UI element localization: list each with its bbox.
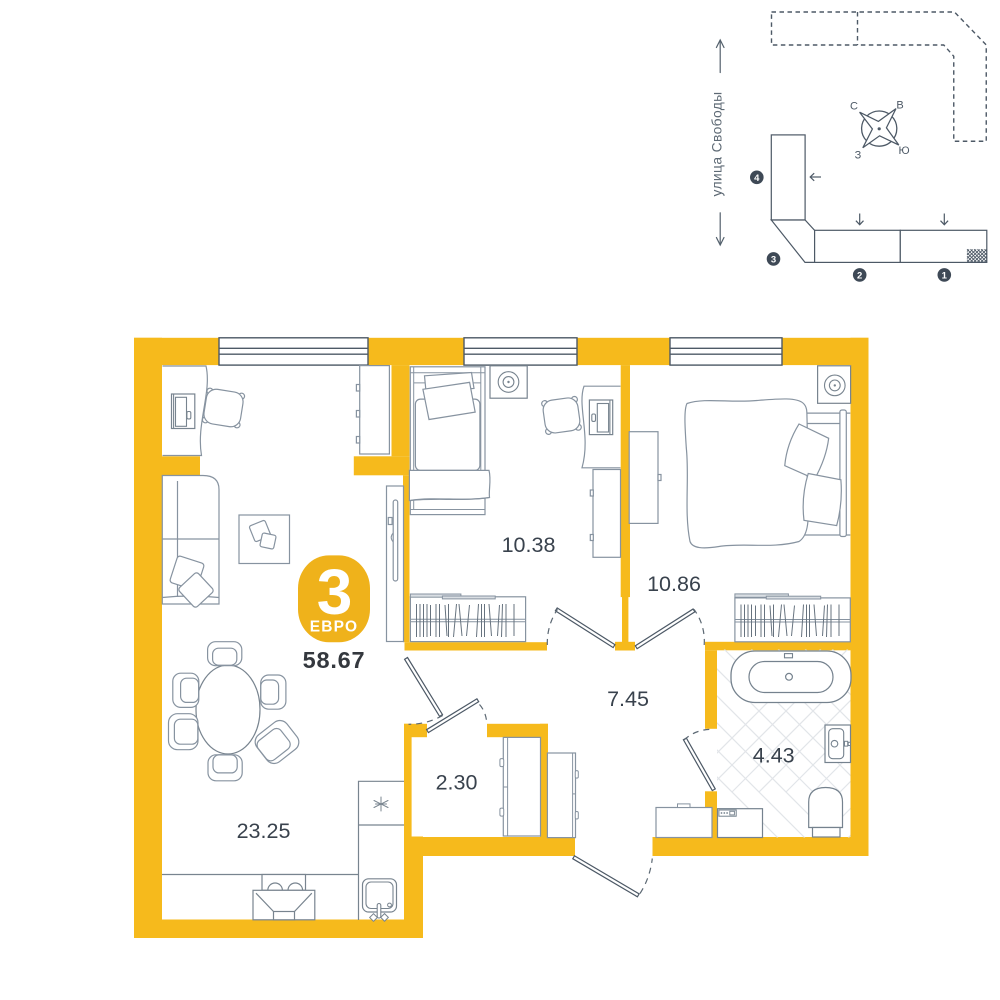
svg-text:улица Свободы: улица Свободы xyxy=(710,91,725,196)
svg-text:58.67: 58.67 xyxy=(303,647,366,673)
svg-text:7.45: 7.45 xyxy=(607,687,649,711)
svg-text:В: В xyxy=(896,100,903,112)
svg-text:1: 1 xyxy=(942,270,948,281)
svg-text:3: 3 xyxy=(771,254,776,265)
svg-text:4: 4 xyxy=(754,173,760,184)
svg-text:2: 2 xyxy=(857,270,862,281)
svg-text:4.43: 4.43 xyxy=(753,744,795,768)
svg-text:10.86: 10.86 xyxy=(647,572,701,596)
svg-text:З: З xyxy=(855,150,862,162)
svg-text:2.30: 2.30 xyxy=(436,771,478,795)
svg-text:10.38: 10.38 xyxy=(502,533,556,557)
svg-text:3: 3 xyxy=(317,556,353,628)
svg-text:С: С xyxy=(850,101,858,113)
svg-text:ЕВРО: ЕВРО xyxy=(310,619,359,636)
svg-text:23.25: 23.25 xyxy=(237,819,291,843)
svg-text:Ю: Ю xyxy=(898,145,909,157)
